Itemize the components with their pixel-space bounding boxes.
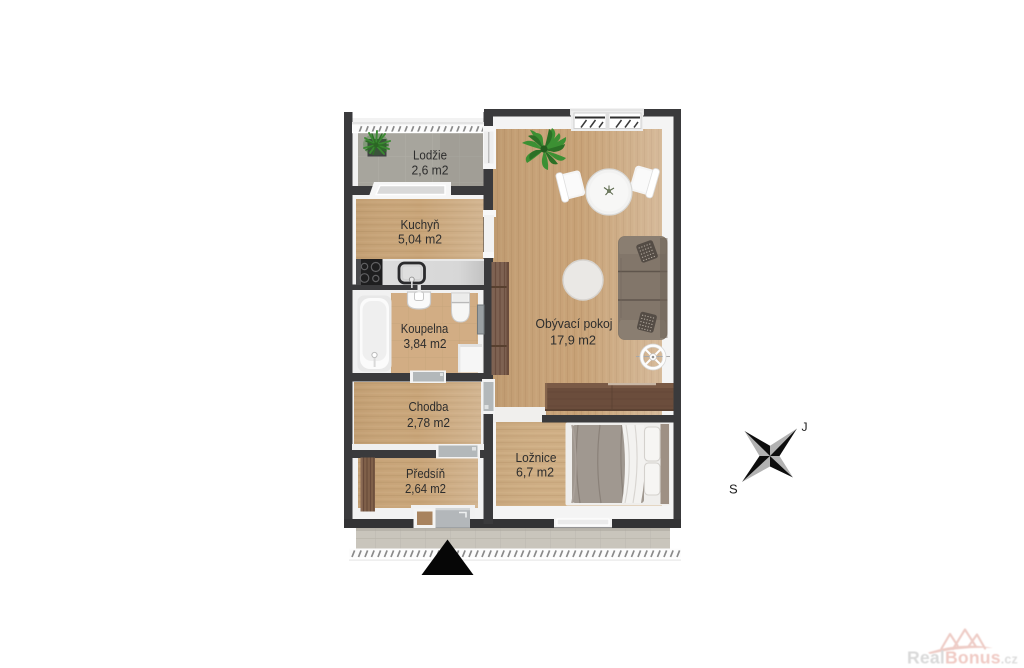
svg-text:Lodžie: Lodžie [413, 148, 447, 163]
svg-text:Ložnice: Ložnice [516, 450, 557, 465]
svg-text:Koupelna: Koupelna [401, 321, 449, 336]
svg-text:Předsíň: Předsíň [406, 466, 445, 481]
svg-text:2,64 m2: 2,64 m2 [405, 481, 446, 496]
svg-text:Obývací pokoj: Obývací pokoj [536, 316, 613, 331]
svg-text:Chodba: Chodba [409, 399, 450, 414]
svg-text:6,7 m2: 6,7 m2 [516, 465, 554, 480]
svg-text:2,78 m2: 2,78 m2 [407, 415, 450, 430]
svg-text:17,9 m2: 17,9 m2 [550, 332, 596, 347]
svg-text:J: J [802, 420, 808, 434]
svg-text:3,84 m2: 3,84 m2 [404, 336, 447, 351]
svg-text:Kuchyň: Kuchyň [401, 217, 440, 232]
svg-text:2,6 m2: 2,6 m2 [412, 163, 449, 178]
svg-text:S: S [729, 482, 738, 497]
svg-text:5,04 m2: 5,04 m2 [398, 232, 442, 247]
